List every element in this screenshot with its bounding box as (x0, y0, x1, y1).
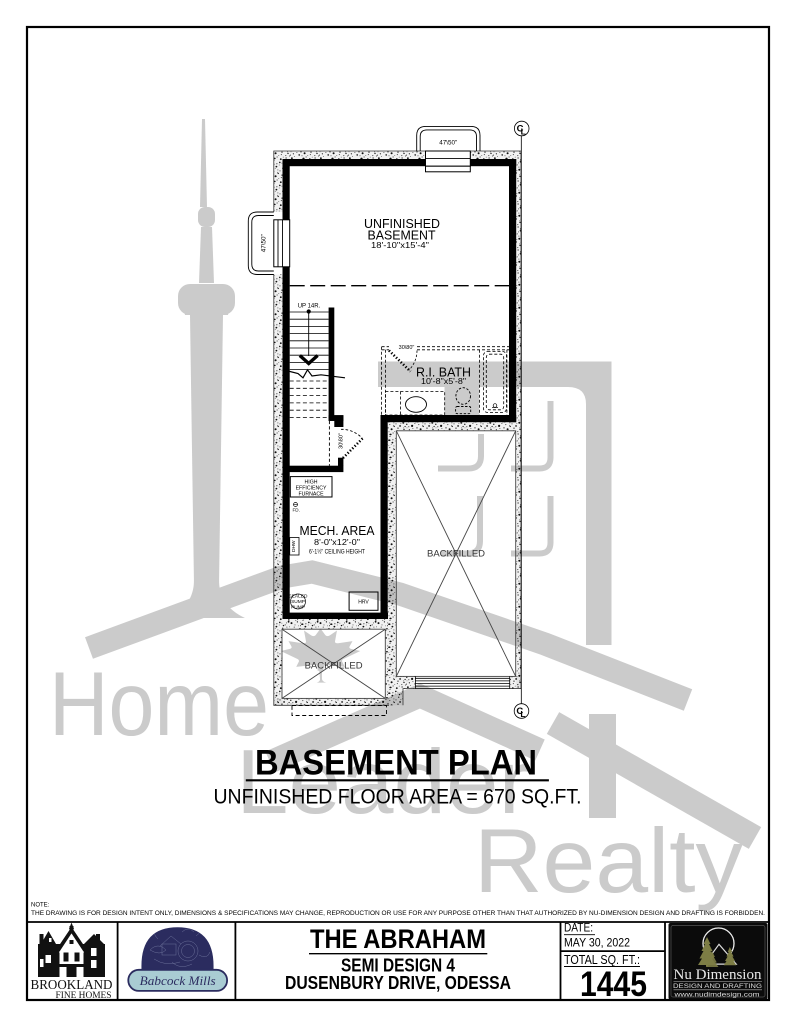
svg-text:L: L (520, 709, 525, 719)
svg-text:47\50": 47\50" (439, 140, 457, 147)
svg-text:Babcock Mills: Babcock Mills (140, 973, 216, 988)
svg-text:UNFINISHED FLOOR AREA = 670 SQ: UNFINISHED FLOOR AREA = 670 SQ.FT. (214, 786, 582, 809)
svg-text:6'-1½" CEILING HEIGHT: 6'-1½" CEILING HEIGHT (309, 549, 365, 556)
svg-text:MECH. AREA: MECH. AREA (300, 523, 375, 538)
svg-text:THE ABRAHAM: THE ABRAHAM (310, 924, 486, 954)
svg-text:47\50": 47\50" (261, 234, 268, 252)
svg-text:FINE HOMES: FINE HOMES (56, 990, 112, 1000)
svg-text:BACKFILLED: BACKFILLED (427, 549, 485, 560)
svg-text:1445: 1445 (580, 965, 647, 1004)
svg-text:DUSENBURY DRIVE, ODESSA: DUSENBURY DRIVE, ODESSA (285, 973, 511, 993)
svg-text:Nu Dimension: Nu Dimension (674, 967, 762, 983)
svg-text:MAY 30, 2022: MAY 30, 2022 (564, 936, 630, 950)
svg-text:BACKFILLED: BACKFILLED (305, 661, 363, 672)
svg-text:10'-8"x5'-8": 10'-8"x5'-8" (421, 377, 466, 386)
svg-text:HRV: HRV (358, 600, 369, 606)
svg-text:30\80": 30\80" (399, 345, 415, 351)
svg-text:UP 14R.: UP 14R. (298, 304, 321, 310)
svg-text:THE DRAWING IS FOR DESIGN INTE: THE DRAWING IS FOR DESIGN INTENT ONLY, D… (31, 910, 765, 917)
svg-text:30\80": 30\80" (339, 433, 345, 449)
svg-text:www.nudimdesign.com: www.nudimdesign.com (673, 991, 759, 998)
svg-text:BASEMENT PLAN: BASEMENT PLAN (255, 744, 537, 783)
svg-text:DHW: DHW (291, 540, 297, 552)
svg-text:NOTE:: NOTE: (31, 903, 50, 909)
svg-text:DESIGN AND DRAFTING: DESIGN AND DRAFTING (673, 983, 762, 990)
svg-text:DATE:: DATE: (564, 921, 593, 935)
svg-text:FURNACE: FURNACE (298, 492, 324, 498)
svg-text:Realty: Realty (474, 811, 744, 912)
svg-text:L: L (521, 126, 526, 136)
svg-text:8'-0"x12'-0": 8'-0"x12'-0" (314, 538, 360, 547)
svg-text:SUMP: SUMP (291, 599, 305, 605)
svg-text:SEALED: SEALED (289, 594, 308, 600)
svg-text:FD.: FD. (293, 508, 300, 513)
svg-text:18'-10"x15'-4": 18'-10"x15'-4" (371, 241, 429, 250)
svg-text:PUMP: PUMP (291, 605, 305, 611)
